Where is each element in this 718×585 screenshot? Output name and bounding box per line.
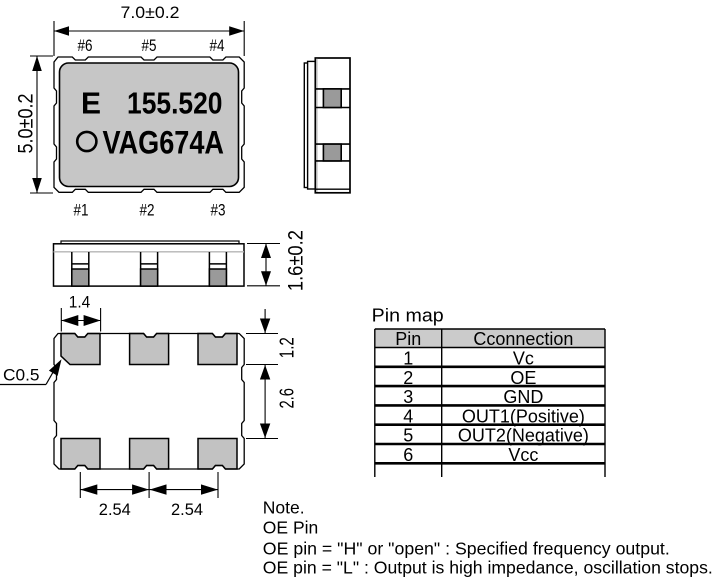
svg-text:OUT1(Positive): OUT1(Positive) xyxy=(462,406,585,426)
svg-text:VAG674A: VAG674A xyxy=(103,125,225,161)
svg-text:5.0±0.2: 5.0±0.2 xyxy=(14,94,37,154)
svg-text:Vc: Vc xyxy=(513,349,534,369)
svg-text:7.0±0.2: 7.0±0.2 xyxy=(121,3,180,22)
svg-text:OE pin = "L" : Output is high: OE pin = "L" : Output is high impedance,… xyxy=(263,558,713,578)
svg-text:#5: #5 xyxy=(142,36,157,55)
svg-text:Pin map: Pin map xyxy=(372,306,444,326)
svg-text:E: E xyxy=(81,86,101,121)
svg-text:OE Pin: OE Pin xyxy=(263,518,318,538)
svg-text:5: 5 xyxy=(403,426,413,446)
svg-text:3: 3 xyxy=(403,387,413,407)
svg-text:4: 4 xyxy=(403,406,413,426)
svg-text:Vcc: Vcc xyxy=(508,445,538,465)
svg-text:Cconnection: Cconnection xyxy=(473,329,573,349)
svg-text:GND: GND xyxy=(503,387,543,407)
svg-text:2: 2 xyxy=(403,368,413,388)
svg-text:6: 6 xyxy=(403,445,413,465)
svg-text:2.54: 2.54 xyxy=(171,500,203,519)
svg-text:1.4: 1.4 xyxy=(69,293,91,312)
svg-text:#4: #4 xyxy=(210,36,225,55)
svg-text:2.6: 2.6 xyxy=(276,388,298,409)
svg-text:2.54: 2.54 xyxy=(99,500,131,519)
svg-text:OUT2(Negative): OUT2(Negative) xyxy=(458,426,589,446)
svg-text:C0.5: C0.5 xyxy=(3,366,40,385)
svg-text:1.2: 1.2 xyxy=(276,337,298,358)
svg-text:155.520: 155.520 xyxy=(127,86,223,121)
svg-text:Note.: Note. xyxy=(263,498,305,518)
svg-text:#2: #2 xyxy=(140,201,155,220)
svg-text:#3: #3 xyxy=(211,201,226,220)
svg-text:#1: #1 xyxy=(74,201,89,220)
svg-text:Pin: Pin xyxy=(395,329,421,349)
svg-text:OE pin = "H" or "open" : Speci: OE pin = "H" or "open" : Specified frequ… xyxy=(263,539,670,559)
svg-text:1.6±0.2: 1.6±0.2 xyxy=(284,230,307,291)
svg-text:OE: OE xyxy=(510,368,536,388)
svg-text:#6: #6 xyxy=(78,36,93,55)
svg-text:1: 1 xyxy=(403,349,413,369)
